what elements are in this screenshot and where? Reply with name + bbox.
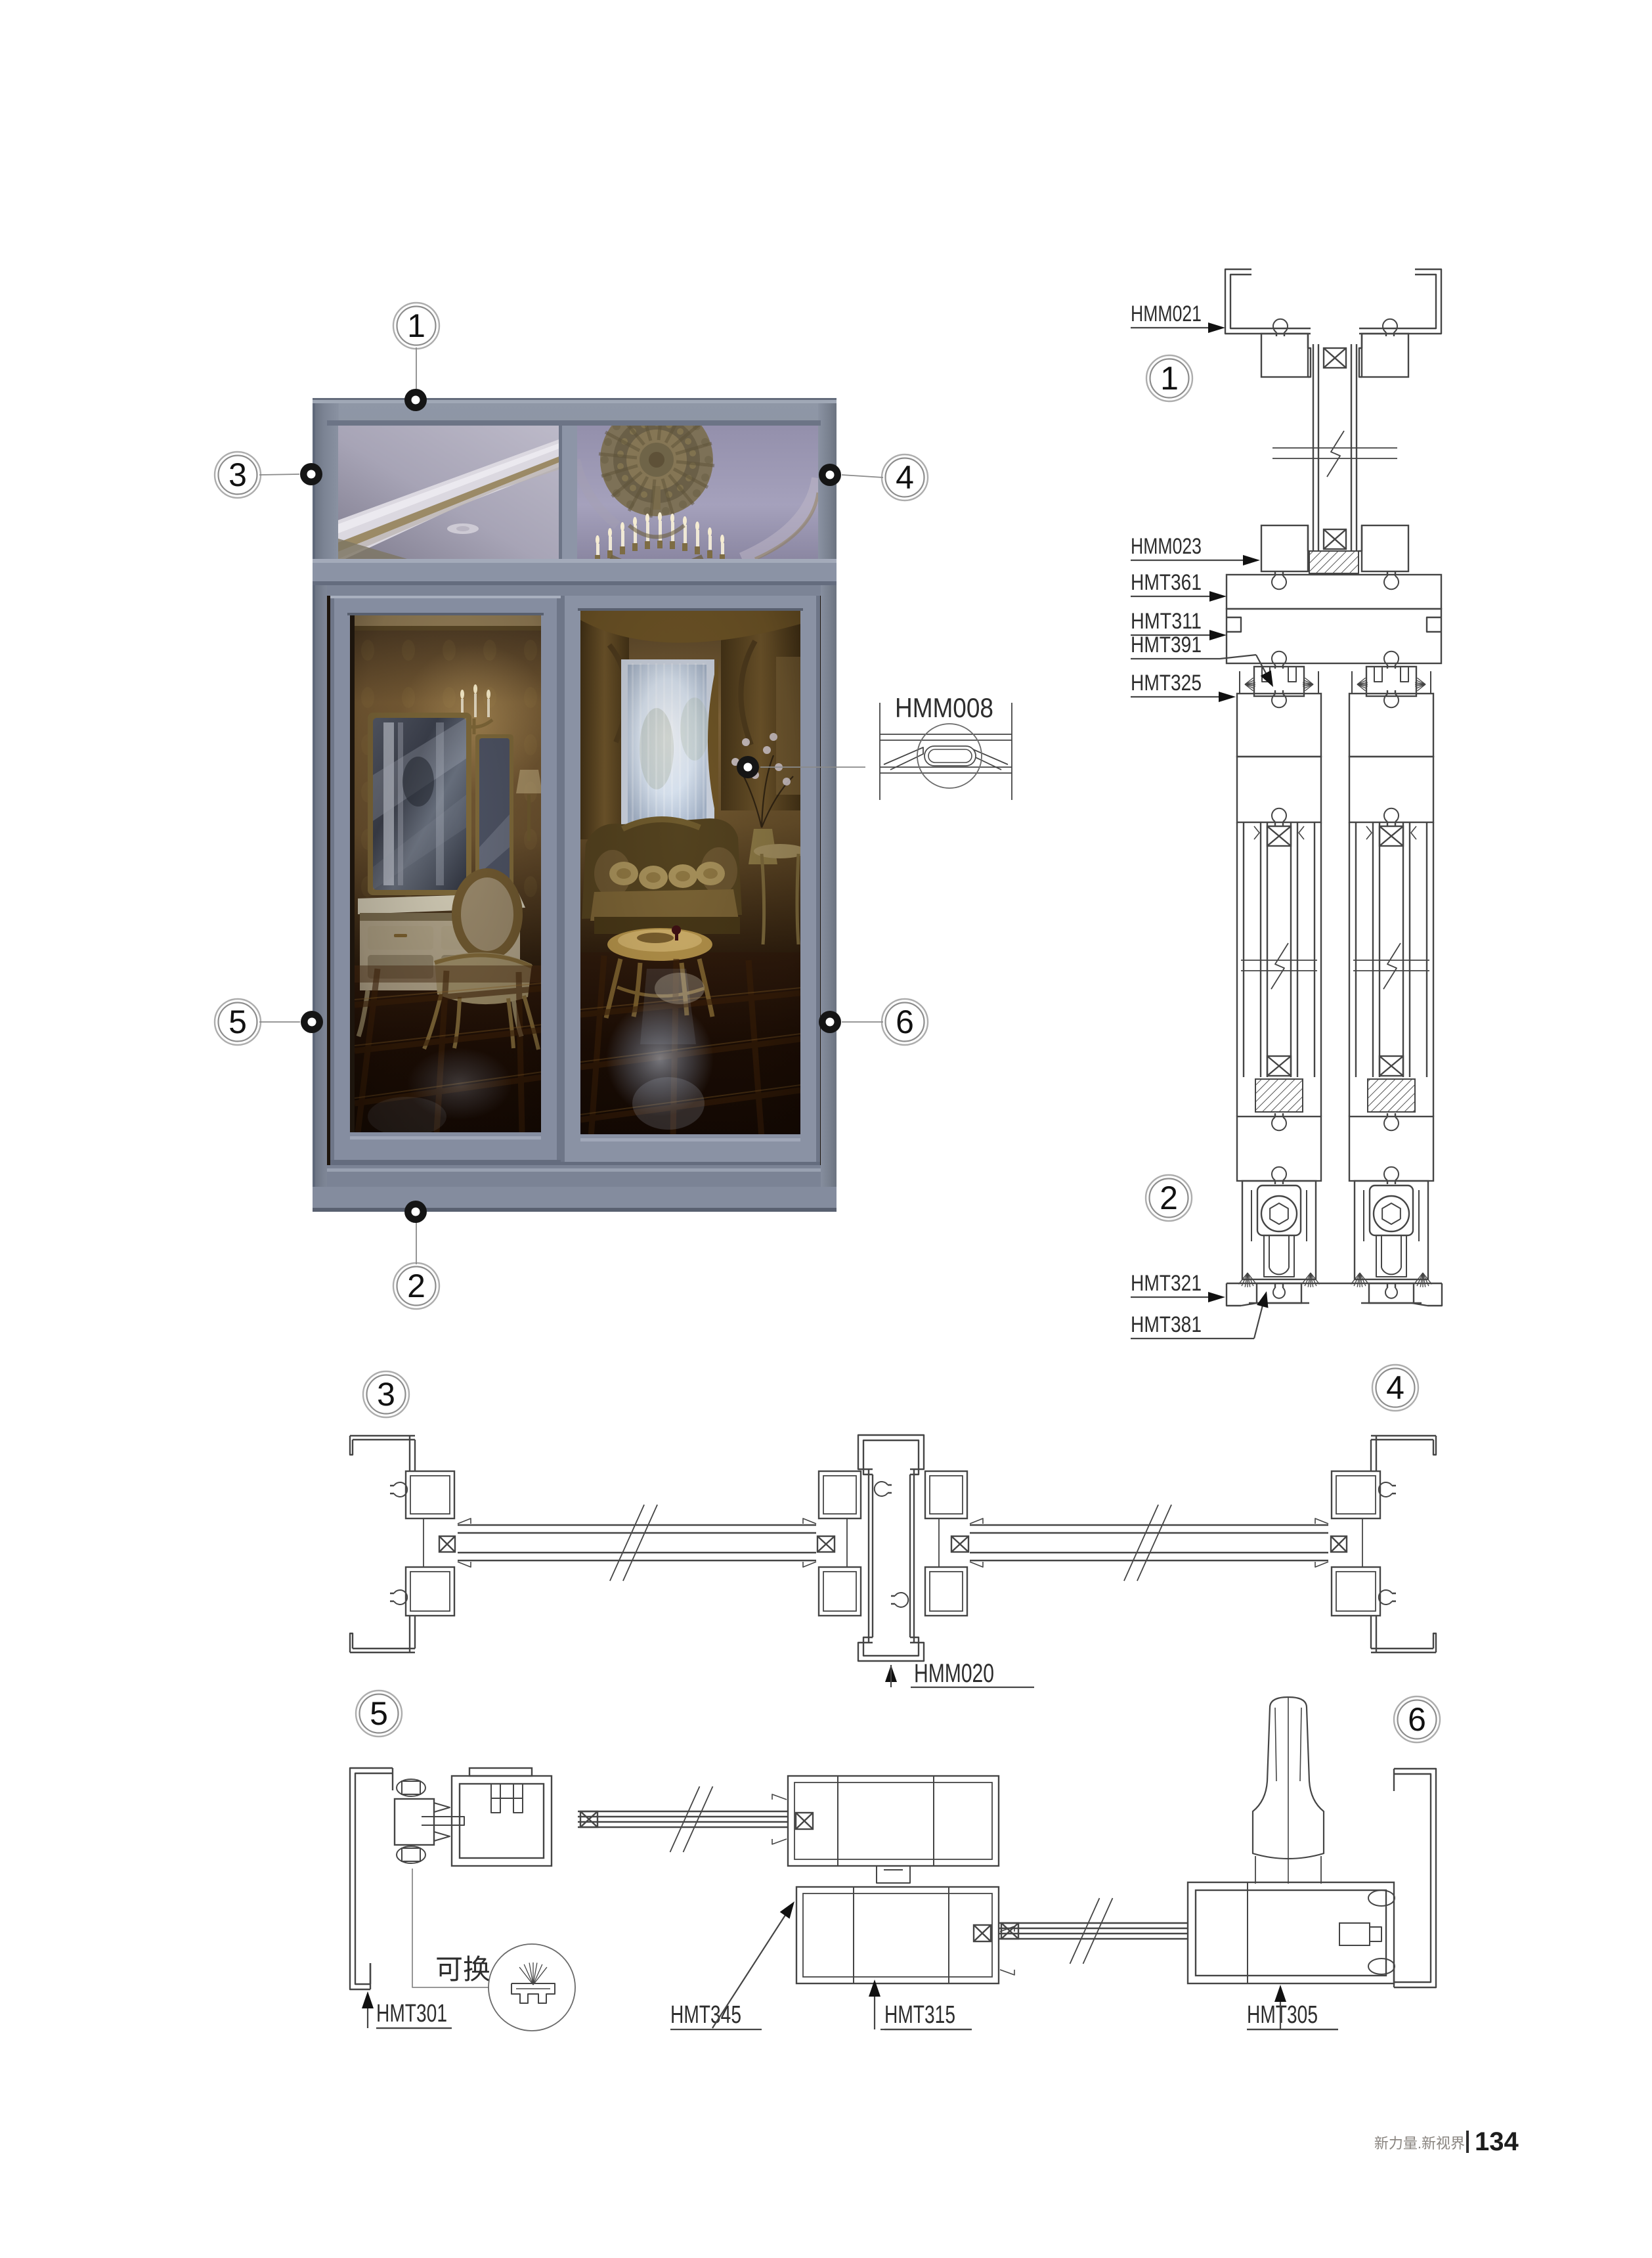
- svg-text:HMT391: HMT391: [1131, 632, 1202, 657]
- svg-text:1: 1: [407, 307, 425, 344]
- svg-text:HMT321: HMT321: [1131, 1271, 1202, 1296]
- svg-text:HMT325: HMT325: [1131, 671, 1202, 696]
- svg-text:2: 2: [1160, 1180, 1178, 1216]
- svg-text:3: 3: [228, 456, 247, 493]
- svg-text:HMM023: HMM023: [1131, 534, 1202, 559]
- svg-text:HMT315: HMT315: [884, 2001, 955, 2029]
- svg-text:6: 6: [896, 1004, 914, 1040]
- svg-text:新力量.新视界: 新力量.新视界: [1374, 2135, 1465, 2152]
- svg-text:5: 5: [370, 1695, 388, 1732]
- svg-text:HMM021: HMM021: [1131, 301, 1202, 326]
- svg-text:4: 4: [1386, 1369, 1404, 1406]
- svg-text:HMT301: HMT301: [376, 2000, 447, 2027]
- svg-text:HMT361: HMT361: [1131, 570, 1202, 595]
- svg-text:5: 5: [228, 1004, 247, 1040]
- svg-text:4: 4: [896, 459, 914, 496]
- svg-text:1: 1: [1160, 360, 1179, 397]
- svg-text:134: 134: [1475, 2127, 1519, 2156]
- svg-text:HMT305: HMT305: [1247, 2001, 1318, 2029]
- svg-text:可换: 可换: [435, 1954, 490, 1985]
- svg-text:HMM020: HMM020: [914, 1659, 994, 1688]
- svg-text:3: 3: [377, 1376, 395, 1413]
- svg-text:HMT381: HMT381: [1131, 1312, 1202, 1337]
- svg-text:2: 2: [407, 1268, 425, 1304]
- svg-text:HMT345: HMT345: [670, 2001, 741, 2029]
- svg-text:HMM008: HMM008: [895, 692, 993, 723]
- svg-text:6: 6: [1408, 1701, 1426, 1738]
- svg-text:HMT311: HMT311: [1131, 609, 1202, 634]
